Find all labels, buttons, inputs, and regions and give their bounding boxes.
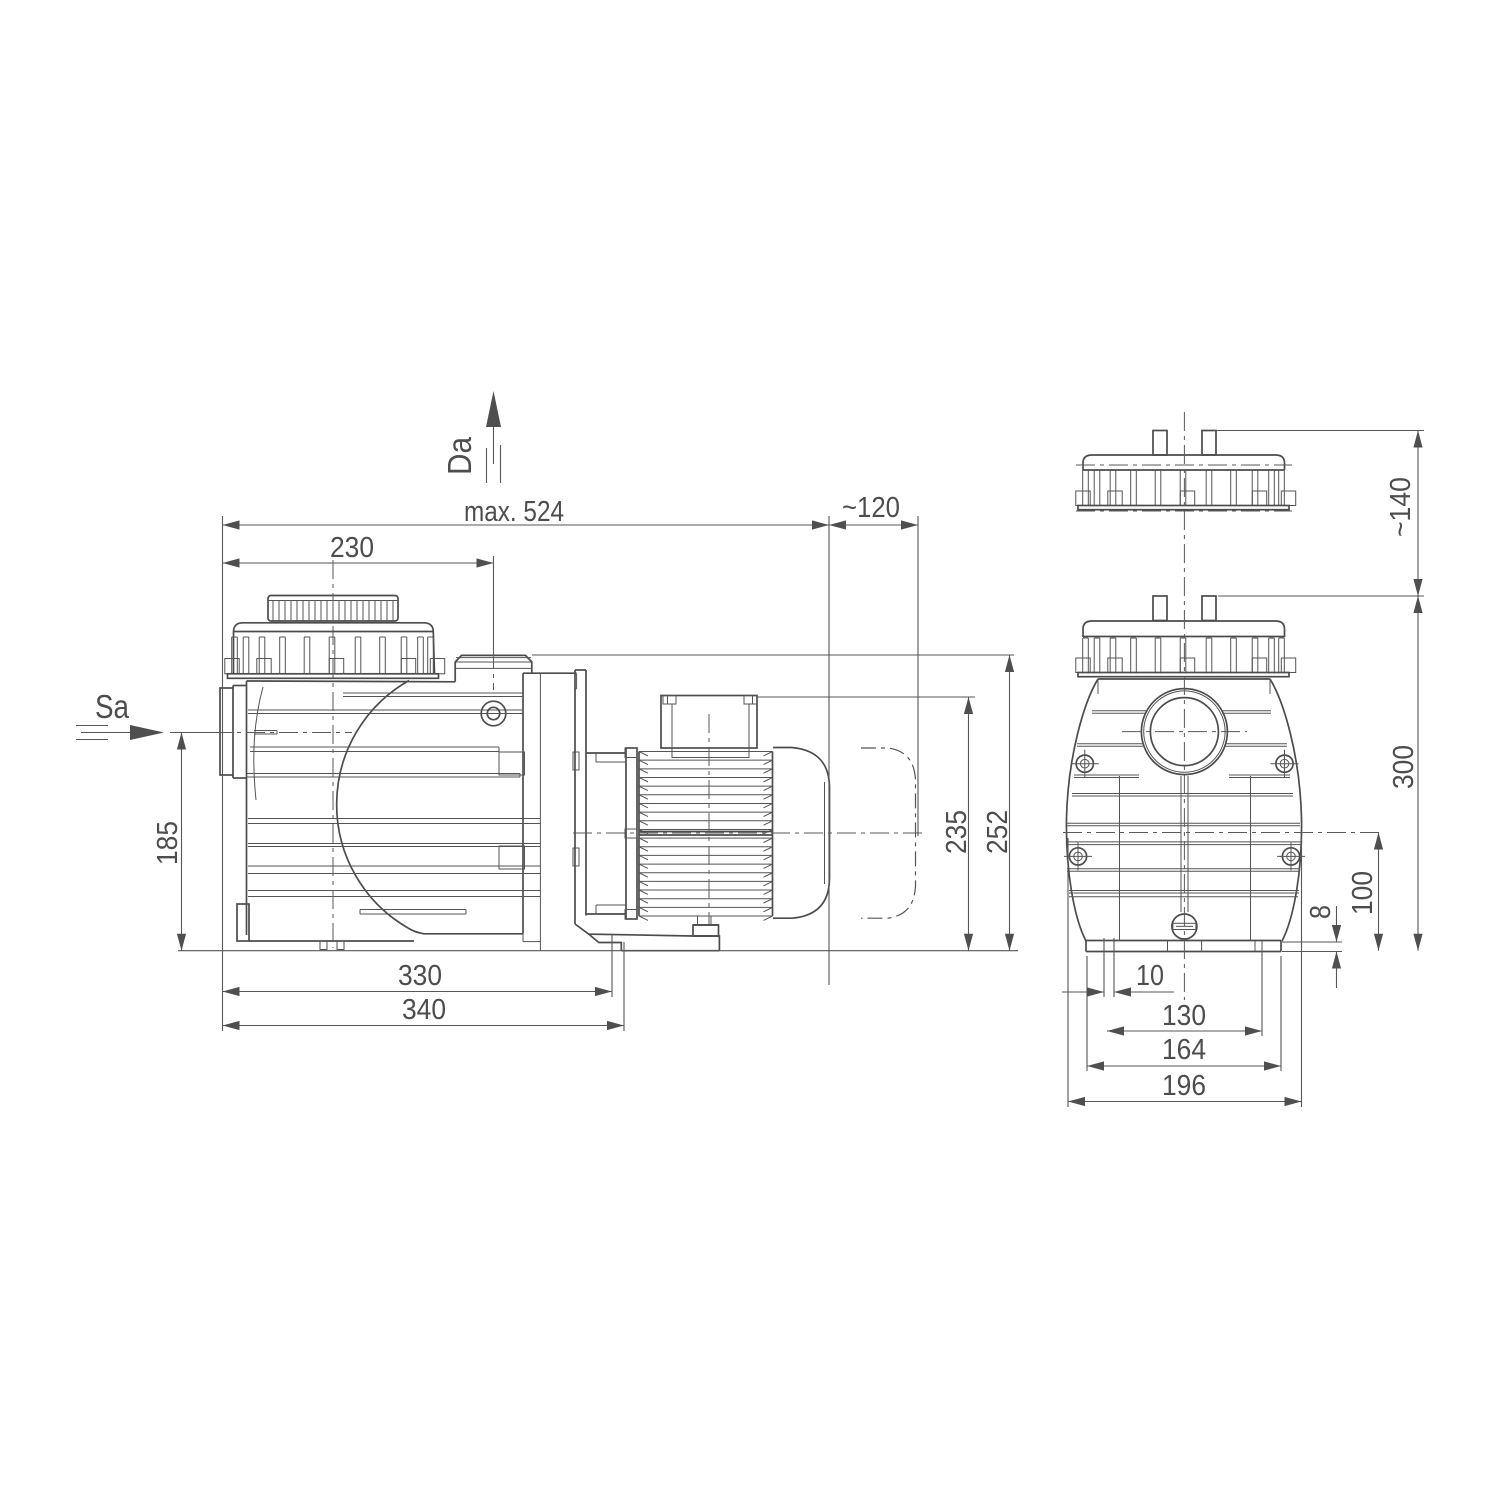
svg-text:196: 196 <box>1162 1070 1206 1102</box>
svg-text:max. 524: max. 524 <box>464 496 564 528</box>
svg-text:Sa: Sa <box>95 688 130 725</box>
svg-text:300: 300 <box>1388 745 1420 789</box>
svg-text:252: 252 <box>982 810 1014 854</box>
svg-text:340: 340 <box>402 994 446 1026</box>
svg-text:330: 330 <box>398 960 442 992</box>
svg-text:164: 164 <box>1162 1034 1206 1066</box>
svg-text:~120: ~120 <box>842 492 900 524</box>
svg-text:230: 230 <box>330 532 374 564</box>
svg-text:8: 8 <box>1305 905 1337 919</box>
svg-text:100: 100 <box>1347 871 1379 915</box>
svg-text:130: 130 <box>1162 1000 1206 1032</box>
svg-text:10: 10 <box>1136 960 1164 992</box>
svg-text:235: 235 <box>941 810 973 854</box>
svg-text:185: 185 <box>152 821 184 865</box>
svg-text:~140: ~140 <box>1385 477 1417 537</box>
svg-text:Da: Da <box>441 436 478 475</box>
